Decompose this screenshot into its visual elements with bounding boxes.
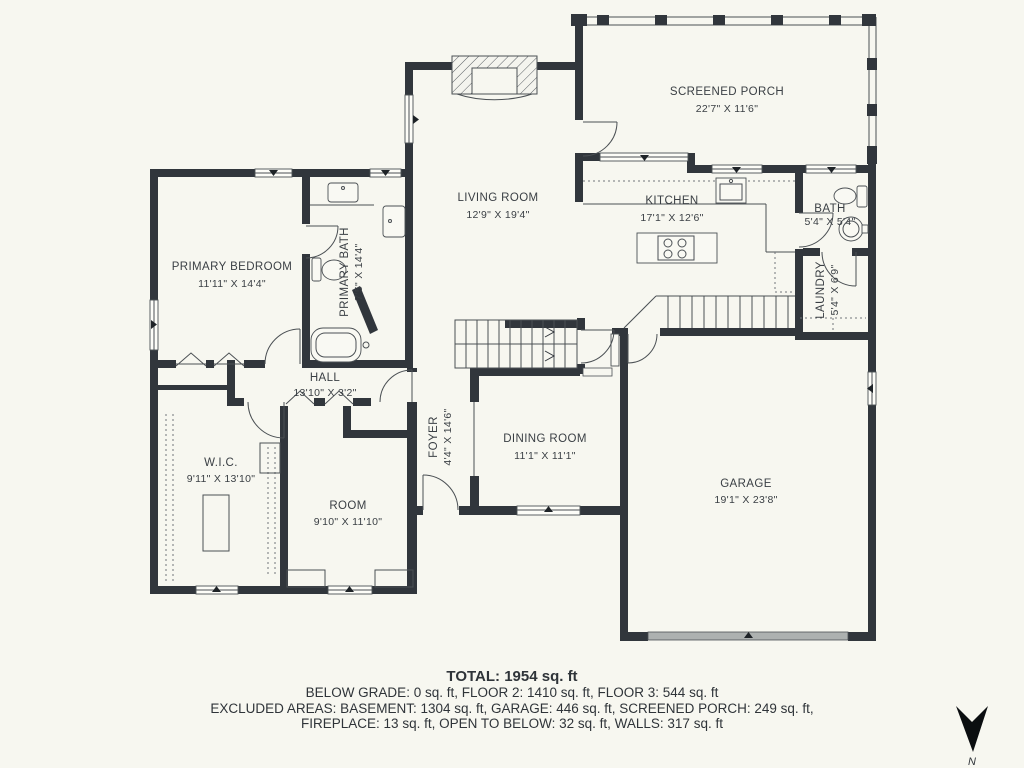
kitchen-sink bbox=[716, 178, 746, 203]
room-dims-bath: 5'4" X 5'4" bbox=[805, 216, 856, 228]
area-summary: TOTAL: 1954 sq. ft BELOW GRADE: 0 sq. ft… bbox=[0, 668, 1024, 732]
room-label-garage: GARAGE bbox=[720, 478, 772, 490]
room-dims-living-room: 12'9" X 19'4" bbox=[466, 209, 529, 221]
room-label-hall: HALL bbox=[310, 372, 341, 384]
room-dims-kitchen: 17'1" X 12'6" bbox=[640, 212, 703, 224]
room-dims-primary-bath: 7'5" X 14'4" bbox=[353, 243, 365, 300]
stairs-lower bbox=[624, 296, 795, 328]
walls bbox=[150, 20, 876, 641]
room-dims-room: 9'10" X 11'10" bbox=[314, 516, 383, 528]
total-area-text: TOTAL: 1954 sq. ft bbox=[0, 668, 1024, 685]
room-label-screened-porch: SCREENED PORCH bbox=[670, 86, 784, 98]
room-dims-wic: 9'11" X 13'10" bbox=[187, 473, 256, 485]
room-labels: SCREENED PORCH 22'7" X 11'6" LIVING ROOM… bbox=[172, 86, 856, 528]
room-dims-foyer: 4'4" X 14'6" bbox=[442, 408, 454, 465]
excluded-areas-text-2: FIREPLACE: 13 sq. ft, OPEN TO BELOW: 32 … bbox=[0, 716, 1024, 732]
kitchen-island bbox=[637, 233, 717, 263]
room-dims-laundry: 5'4" X 6'9" bbox=[829, 265, 841, 316]
room-dims-primary-bedroom: 11'11" X 14'4" bbox=[198, 278, 266, 290]
room-dims-screened-porch: 22'7" X 11'6" bbox=[696, 103, 758, 115]
room-dims-garage: 19'1" X 23'8" bbox=[714, 494, 777, 506]
room-label-dining-room: DINING ROOM bbox=[503, 433, 587, 445]
room-label-living-room: LIVING ROOM bbox=[457, 192, 538, 204]
room-dims-hall: 13'10" X 3'2" bbox=[293, 387, 356, 399]
north-label: N bbox=[968, 756, 976, 768]
shower-drain bbox=[363, 342, 369, 348]
bathtub-fixture bbox=[311, 328, 361, 362]
room-label-wic: W.I.C. bbox=[204, 457, 238, 469]
room-label-primary-bedroom: PRIMARY BEDROOM bbox=[172, 261, 293, 273]
wic-island bbox=[203, 495, 229, 551]
fireplace bbox=[452, 56, 537, 100]
excluded-areas-text: EXCLUDED AREAS: BASEMENT: 1304 sq. ft, G… bbox=[0, 701, 1024, 717]
floor-areas-text: BELOW GRADE: 0 sq. ft, FLOOR 2: 1410 sq.… bbox=[0, 685, 1024, 701]
room-label-laundry: LAUNDRY bbox=[815, 261, 827, 319]
room-label-room: ROOM bbox=[329, 500, 366, 512]
room-label-primary-bath: PRIMARY BATH bbox=[339, 227, 351, 317]
floor-plan: SCREENED PORCH 22'7" X 11'6" LIVING ROOM… bbox=[0, 0, 1024, 768]
room-label-bath: BATH bbox=[814, 203, 845, 215]
room-label-foyer: FOYER bbox=[428, 416, 440, 458]
floor-plan-page: SCREENED PORCH 22'7" X 11'6" LIVING ROOM… bbox=[0, 0, 1024, 768]
room-dims-dining-room: 11'1" X 11'1" bbox=[514, 450, 576, 462]
room-label-kitchen: KITCHEN bbox=[645, 195, 698, 207]
